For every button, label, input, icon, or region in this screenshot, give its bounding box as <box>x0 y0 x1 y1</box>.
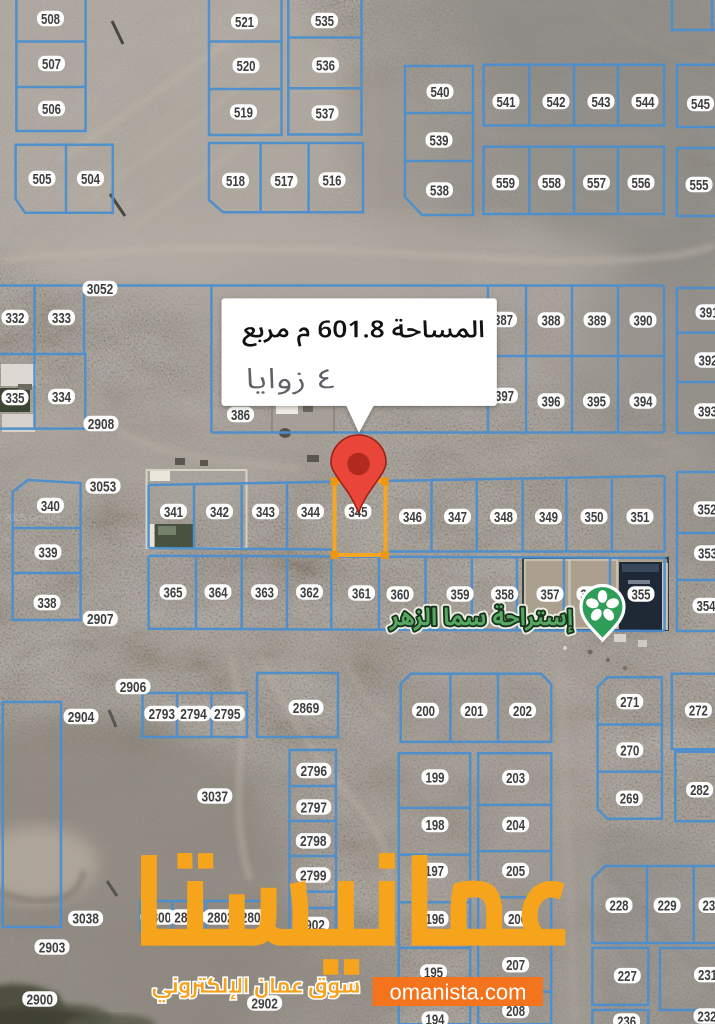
svg-text:358: 358 <box>495 586 514 603</box>
svg-text:2796: 2796 <box>301 763 328 780</box>
svg-text:518: 518 <box>226 173 245 190</box>
svg-text:355: 355 <box>632 586 651 603</box>
svg-text:519: 519 <box>234 104 253 121</box>
svg-text:387: 387 <box>494 312 513 329</box>
svg-text:359: 359 <box>451 586 470 603</box>
svg-text:271: 271 <box>620 694 639 711</box>
svg-text:397: 397 <box>495 388 514 405</box>
svg-text:396: 396 <box>542 393 561 410</box>
svg-text:394: 394 <box>634 393 653 410</box>
svg-text:365: 365 <box>164 584 183 601</box>
svg-text:343: 343 <box>256 504 275 521</box>
svg-text:272: 272 <box>689 703 708 720</box>
svg-text:332: 332 <box>6 310 25 327</box>
svg-text:236: 236 <box>617 1013 636 1024</box>
svg-text:228: 228 <box>610 898 629 915</box>
svg-text:282: 282 <box>690 782 709 799</box>
svg-text:555: 555 <box>690 177 709 194</box>
svg-text:2025 Google: 2025 Google <box>4 513 62 524</box>
svg-text:389: 389 <box>588 312 607 329</box>
svg-text:507: 507 <box>42 56 61 73</box>
svg-text:559: 559 <box>496 175 515 192</box>
svg-text:542: 542 <box>547 94 566 111</box>
svg-text:520: 520 <box>237 58 256 75</box>
svg-text:2906: 2906 <box>120 679 147 696</box>
svg-text:207: 207 <box>506 957 525 974</box>
svg-text:363: 363 <box>255 584 274 601</box>
svg-text:347: 347 <box>448 509 467 526</box>
svg-text:357: 357 <box>541 586 560 603</box>
svg-text:2907: 2907 <box>87 611 114 628</box>
svg-text:3038: 3038 <box>72 911 99 928</box>
svg-text:2869: 2869 <box>293 700 320 717</box>
svg-text:198: 198 <box>426 817 445 834</box>
svg-text:364: 364 <box>209 584 228 601</box>
svg-text:350: 350 <box>585 509 604 526</box>
svg-text:353: 353 <box>698 545 715 562</box>
svg-text:227: 227 <box>618 968 637 985</box>
svg-text:339: 339 <box>39 544 58 561</box>
svg-text:537: 537 <box>316 105 335 122</box>
svg-text:544: 544 <box>636 94 655 111</box>
svg-text:201: 201 <box>465 703 484 720</box>
svg-text:521: 521 <box>235 14 254 31</box>
svg-text:270: 270 <box>620 742 639 759</box>
svg-text:2908: 2908 <box>88 416 115 433</box>
svg-text:506: 506 <box>42 101 61 118</box>
svg-text:348: 348 <box>494 509 513 526</box>
svg-text:3053: 3053 <box>90 478 117 495</box>
svg-text:344: 344 <box>301 504 320 521</box>
svg-text:540: 540 <box>431 84 450 101</box>
svg-text:203: 203 <box>506 770 525 787</box>
svg-text:3037: 3037 <box>202 788 229 805</box>
svg-text:354: 354 <box>697 598 715 615</box>
svg-text:338: 338 <box>38 595 57 612</box>
svg-text:2797: 2797 <box>301 799 328 816</box>
svg-text:541: 541 <box>497 94 516 111</box>
svg-text:557: 557 <box>587 175 606 192</box>
svg-text:2798: 2798 <box>300 833 327 850</box>
svg-text:393: 393 <box>698 403 715 420</box>
svg-text:556: 556 <box>632 175 651 192</box>
svg-text:333: 333 <box>52 310 71 327</box>
svg-text:2904: 2904 <box>68 709 95 726</box>
svg-text:352: 352 <box>698 501 715 518</box>
svg-text:543: 543 <box>592 94 611 111</box>
svg-text:351: 351 <box>631 509 650 526</box>
svg-text:230: 230 <box>703 898 715 915</box>
svg-text:545: 545 <box>691 96 710 113</box>
svg-text:231: 231 <box>698 967 715 984</box>
svg-text:2793: 2793 <box>149 706 176 723</box>
svg-text:558: 558 <box>542 175 561 192</box>
svg-text:505: 505 <box>33 171 52 188</box>
svg-text:536: 536 <box>316 57 335 74</box>
svg-text:504: 504 <box>81 171 100 188</box>
svg-text:342: 342 <box>210 504 229 521</box>
svg-text:346: 346 <box>403 509 422 526</box>
svg-text:386: 386 <box>231 407 250 424</box>
svg-text:539: 539 <box>430 132 449 149</box>
svg-text:516: 516 <box>323 172 342 189</box>
svg-text:517: 517 <box>275 173 294 190</box>
svg-text:202: 202 <box>513 703 532 720</box>
svg-text:3052: 3052 <box>87 281 114 298</box>
svg-text:349: 349 <box>539 509 558 526</box>
svg-text:199: 199 <box>426 769 445 786</box>
svg-text:196: 196 <box>426 911 445 928</box>
svg-text:205: 205 <box>506 863 525 880</box>
svg-text:395: 395 <box>587 393 606 410</box>
svg-text:204: 204 <box>506 817 525 834</box>
svg-text:194: 194 <box>426 1011 445 1024</box>
svg-text:391: 391 <box>700 304 715 321</box>
svg-text:361: 361 <box>352 585 371 602</box>
svg-text:269: 269 <box>620 791 639 808</box>
svg-text:2795: 2795 <box>214 706 241 723</box>
svg-text:392: 392 <box>699 352 715 369</box>
svg-text:341: 341 <box>164 504 183 521</box>
svg-text:2903: 2903 <box>39 939 66 956</box>
svg-text:229: 229 <box>658 898 677 915</box>
svg-text:334: 334 <box>52 389 71 406</box>
svg-text:335: 335 <box>6 390 25 407</box>
svg-text:2794: 2794 <box>180 706 207 723</box>
svg-text:535: 535 <box>315 13 334 30</box>
svg-text:2900: 2900 <box>27 991 54 1008</box>
svg-text:232: 232 <box>698 1009 715 1024</box>
svg-text:omanista.com: omanista.com <box>390 980 527 1005</box>
svg-text:538: 538 <box>430 182 449 199</box>
svg-text:200: 200 <box>416 703 435 720</box>
svg-text:360: 360 <box>391 586 410 603</box>
svg-text:362: 362 <box>300 584 319 601</box>
svg-text:508: 508 <box>41 11 60 28</box>
svg-text:388: 388 <box>542 312 561 329</box>
svg-text:197: 197 <box>425 863 444 880</box>
svg-text:390: 390 <box>634 312 653 329</box>
